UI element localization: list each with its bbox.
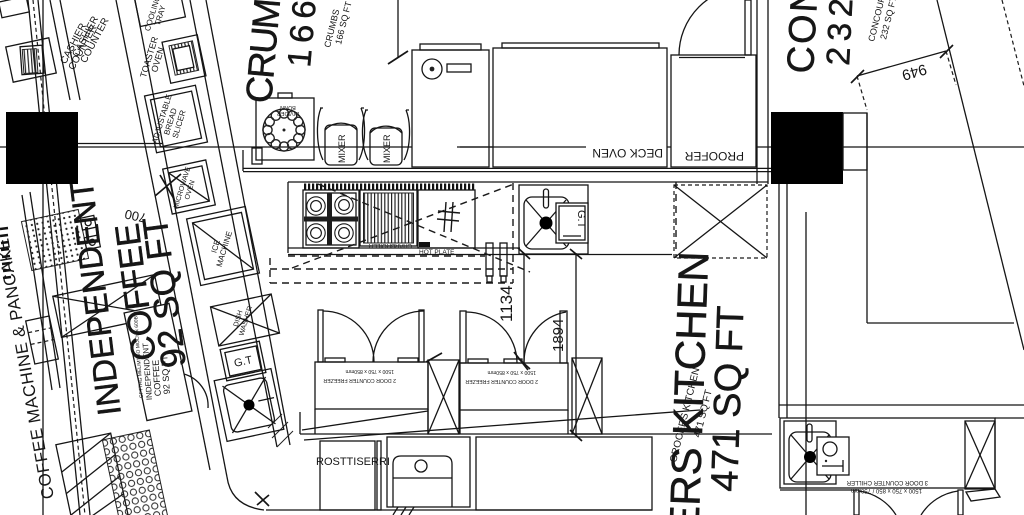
svg-text:1894: 1894 (550, 319, 567, 352)
svg-text:DIVIDER: DIVIDER (277, 110, 299, 116)
svg-text:1500 x 750 x 850 / 750mm: 1500 x 750 x 850 / 750mm (851, 487, 922, 493)
svg-text:2 DOOR COUNTER FREEZER: 2 DOOR COUNTER FREEZER (323, 377, 396, 383)
svg-text:ROSTTISERRI: ROSTTISERRI (316, 456, 390, 468)
svg-text:HOT PLATE: HOT PLATE (419, 249, 455, 256)
svg-text:1500 x 750 x 850mm: 1500 x 750 x 850mm (346, 368, 394, 374)
svg-text:DECK OVEN: DECK OVEN (592, 146, 663, 160)
svg-text:PROOFER: PROOFER (684, 149, 744, 163)
svg-text:1134: 1134 (497, 285, 516, 322)
svg-text:3 DOOR COUNTER CHILLER: 3 DOOR COUNTER CHILLER (846, 479, 928, 485)
svg-text:MIXER: MIXER (382, 134, 392, 163)
svg-text:G.T: G.T (575, 210, 587, 229)
svg-text:1500 x 750 x 850mm: 1500 x 750 x 850mm (488, 369, 536, 375)
svg-text:BUNN: BUNN (280, 104, 296, 110)
svg-text:MIXER: MIXER (337, 134, 347, 163)
svg-text:2 DOOR COUNTER FREEZER: 2 DOOR COUNTER FREEZER (465, 378, 538, 384)
svg-text:CHARBROILER: CHARBROILER (368, 242, 412, 248)
